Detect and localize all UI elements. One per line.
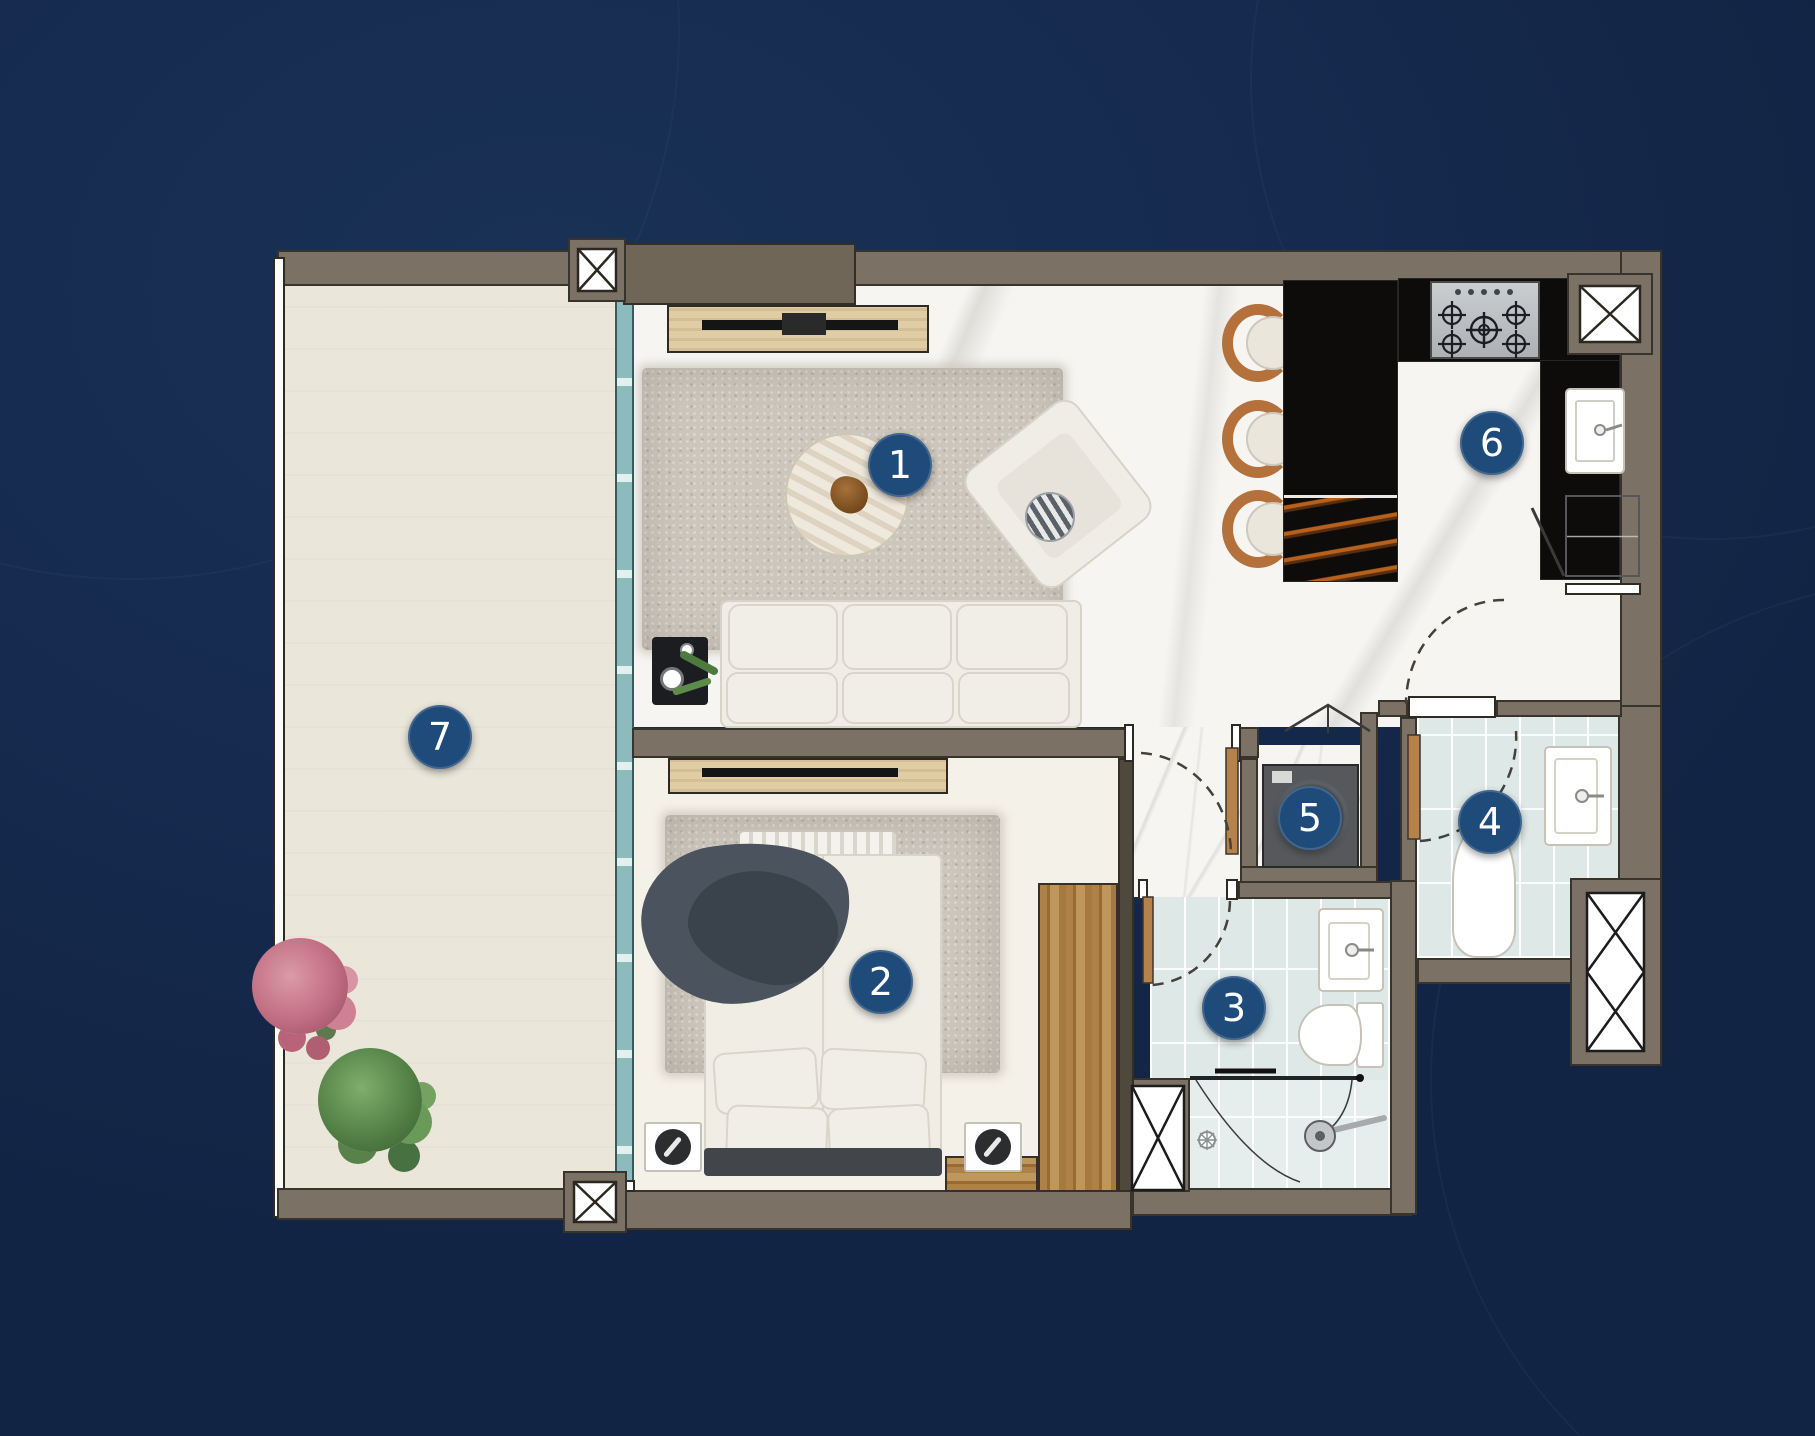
room-marker-4-bathroom: 4 [1458, 790, 1522, 854]
bedroom-wardrobe [1038, 883, 1118, 1192]
nightstand-left [644, 1122, 702, 1172]
kitchen-island [1283, 280, 1398, 582]
door-jamb [1226, 879, 1238, 900]
cooktop [1430, 281, 1540, 359]
wall-entry-left [1378, 700, 1408, 717]
sofa-cushion [842, 604, 952, 670]
door-jamb [1138, 879, 1148, 900]
shower-zone [1190, 1080, 1392, 1192]
fridge [1565, 495, 1640, 577]
wall-bathroom4-right [1618, 705, 1662, 885]
bathroom4-vanity [1544, 746, 1612, 846]
room-marker-6-kitchen: 6 [1460, 411, 1524, 475]
marker-number: 7 [428, 718, 452, 756]
sofa [720, 600, 1082, 728]
wall-wardrobe-back [1118, 758, 1134, 1192]
glass-door-end-cap [614, 1180, 635, 1192]
entry-door-threshold [1408, 696, 1496, 718]
striped-pillow [1025, 492, 1075, 542]
sofa-cushion [956, 604, 1068, 670]
sofa-seat-cushion [726, 672, 838, 724]
wall-entry-right [1496, 700, 1622, 717]
bathroom3-vanity [1318, 908, 1384, 992]
lamp-icon [655, 1129, 691, 1165]
tv-icon [702, 768, 898, 777]
room-marker-7-balcony: 7 [408, 705, 472, 769]
sofa-seat-cushion [958, 672, 1070, 724]
living-wall-cabinet [623, 243, 856, 305]
room-marker-3-bathroom: 3 [1202, 976, 1266, 1040]
door-jamb [1231, 724, 1241, 762]
wall-bedroom-bottom [616, 1190, 1132, 1230]
pink-flower-plant [252, 938, 348, 1034]
sink-basin [1328, 922, 1370, 980]
wall-balcony-bottom [277, 1188, 618, 1220]
room-marker-2-bedroom: 2 [849, 950, 913, 1014]
bedroom-tv-console [668, 758, 948, 794]
marker-number: 2 [869, 963, 893, 1001]
room-marker-1-living: 1 [868, 433, 932, 497]
wall-bathroom3-bottom [1132, 1188, 1412, 1216]
tv-centerbox-icon [782, 313, 826, 335]
bathroom3-toilet [1298, 1004, 1362, 1066]
balcony-window-wall [273, 257, 285, 1218]
wall-laundry-niche-left [1240, 758, 1258, 868]
wall-kitchen-right [1620, 250, 1662, 710]
nightstand-right [964, 1122, 1022, 1172]
wall-laundry-niche-right [1360, 712, 1378, 868]
lamp-icon [975, 1129, 1011, 1165]
green-plant [318, 1048, 422, 1152]
sofa-cushion [728, 604, 838, 670]
wall-shaft-right-surround [1570, 878, 1662, 1066]
floor-plan-canvas: 1 2 3 4 5 6 7 [0, 0, 1815, 1436]
washer-control-panel [1272, 771, 1292, 783]
door-jamb [1124, 724, 1134, 762]
marker-number: 3 [1222, 989, 1246, 1027]
room-marker-5-laundry: 5 [1278, 786, 1342, 850]
marker-number: 4 [1478, 803, 1502, 841]
vestibule-floor [1132, 727, 1240, 897]
bed-foot-platform [704, 1148, 942, 1176]
island-marble-streaks [1284, 495, 1397, 581]
marker-number: 6 [1480, 424, 1504, 462]
sofa-seat-cushion [842, 672, 954, 724]
wall-bathroom3-top [1238, 881, 1392, 899]
marker-number: 1 [888, 446, 912, 484]
sink-basin [1575, 400, 1615, 462]
living-tv-console [667, 305, 929, 353]
wall-living-bedroom [632, 728, 1132, 758]
plant-side-table [652, 637, 708, 705]
kitchen-sink [1565, 388, 1625, 474]
wall-bathroom4-bottom [1417, 958, 1572, 984]
sink-basin [1554, 758, 1598, 834]
marker-number: 5 [1298, 799, 1322, 837]
door-jamb [1565, 583, 1641, 595]
wall-bathroom-divider [1390, 880, 1417, 1215]
